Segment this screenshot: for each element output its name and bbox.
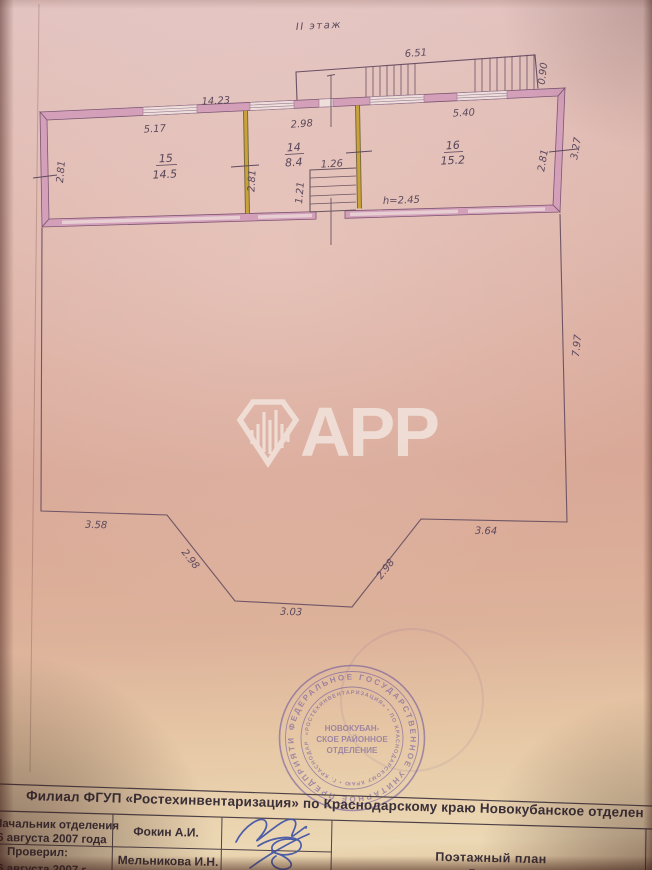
room-area: 8.4 xyxy=(285,156,303,170)
stamp-center-line1: НОВОКУБАН- xyxy=(325,724,380,733)
checker-role: Проверил: xyxy=(7,846,68,859)
dim-terrace-chamfer-left: 2.98 xyxy=(179,547,201,571)
dim-terrace-bottom-left: 3.58 xyxy=(85,520,108,532)
stamp-center-line3: ОТДЕЛЕНИЕ xyxy=(327,746,378,755)
dim-wall-right-inner: 2.81 xyxy=(536,149,551,173)
dim-stair-top: 6.51 xyxy=(404,47,427,60)
room-number: 15 xyxy=(158,152,173,166)
room-number: 16 xyxy=(445,139,460,153)
approver-name: Фокин А.И. xyxy=(133,824,199,839)
dim-wall-left: 2.81 xyxy=(55,160,68,183)
bottom-wall-strips xyxy=(62,207,545,224)
wall-left xyxy=(40,112,49,227)
room-15-label: 15 14.5 xyxy=(152,152,177,182)
paper-crease xyxy=(30,4,39,772)
dim-wall-right-outer: 3.27 xyxy=(569,136,584,160)
dimension-labels: 14.23 5.17 2.98 5.40 2.81 2.81 2.81 3.27… xyxy=(55,95,584,618)
dim-wall-mid: 2.81 xyxy=(246,169,258,192)
table-col2-line xyxy=(221,817,222,870)
dim-window-room14: 2.98 xyxy=(290,118,313,131)
table-col3-line xyxy=(331,820,332,870)
dim-stairs-width: 1.26 xyxy=(320,158,343,170)
stairwell-outline xyxy=(310,168,356,212)
signature xyxy=(236,819,309,869)
footer: Филиал ФГУП «Ростехинвентаризация» по Кр… xyxy=(0,784,652,870)
ceiling-height-note: h=2.45 xyxy=(383,195,420,207)
dim-window-room16: 5.40 xyxy=(452,107,475,119)
room-16-label: 16 15.2 xyxy=(440,139,465,168)
scanned-document-page: II этаж 6.51 0.90 xyxy=(0,0,652,870)
dim-stair-depth: 0.90 xyxy=(537,62,551,85)
window-room14 xyxy=(250,100,294,110)
dim-terrace-bottom: 3.03 xyxy=(280,607,303,619)
gem-buildings xyxy=(252,410,288,454)
room-area: 15.2 xyxy=(440,153,465,167)
doc-subtitle-partial: Литер А xyxy=(467,866,515,870)
room-number: 14 xyxy=(286,141,301,155)
window-room16b xyxy=(457,91,507,101)
window-room15 xyxy=(143,105,197,116)
partition-1 xyxy=(246,111,248,214)
table-col4-line xyxy=(646,829,647,870)
stamp-center-line2: СКОЕ РАЙОННОЕ xyxy=(316,733,388,744)
stairwell-treads xyxy=(310,176,356,204)
tick-marks xyxy=(33,149,577,178)
dim-window-room15: 5.17 xyxy=(143,123,166,135)
page-title: II этаж xyxy=(296,20,343,33)
dim-terrace-chamfer-right: 2.98 xyxy=(375,557,397,581)
floor-plan-scan: II этаж 6.51 0.90 xyxy=(0,0,652,870)
watermark-text: APP xyxy=(300,393,438,471)
doc-title: Поэтажный план xyxy=(435,850,547,867)
dim-terrace-bottom-right: 3.64 xyxy=(475,526,497,537)
stair-treads-left xyxy=(366,63,415,97)
checker-name: Мельникова И.Н. xyxy=(118,853,219,869)
dim-terrace-right: 7.97 xyxy=(571,333,584,357)
room-14-label: 14 8.4 xyxy=(285,141,304,170)
checker-date: 6 августа 2007 г xyxy=(0,863,87,870)
walls xyxy=(40,88,565,227)
dim-overall-left: 14.23 xyxy=(201,95,230,107)
room-area: 14.5 xyxy=(152,167,177,181)
stair-treads-right xyxy=(475,54,534,92)
approver-date: 6 августа 2007 года xyxy=(0,832,107,846)
gem-logo-icon xyxy=(240,402,296,463)
app-watermark: APP xyxy=(240,393,438,471)
approver-role: Начальник отделения xyxy=(0,818,119,833)
partition-2 xyxy=(358,105,360,208)
dim-stairs-depth: 1.21 xyxy=(294,181,307,204)
window-room16a xyxy=(370,94,424,104)
